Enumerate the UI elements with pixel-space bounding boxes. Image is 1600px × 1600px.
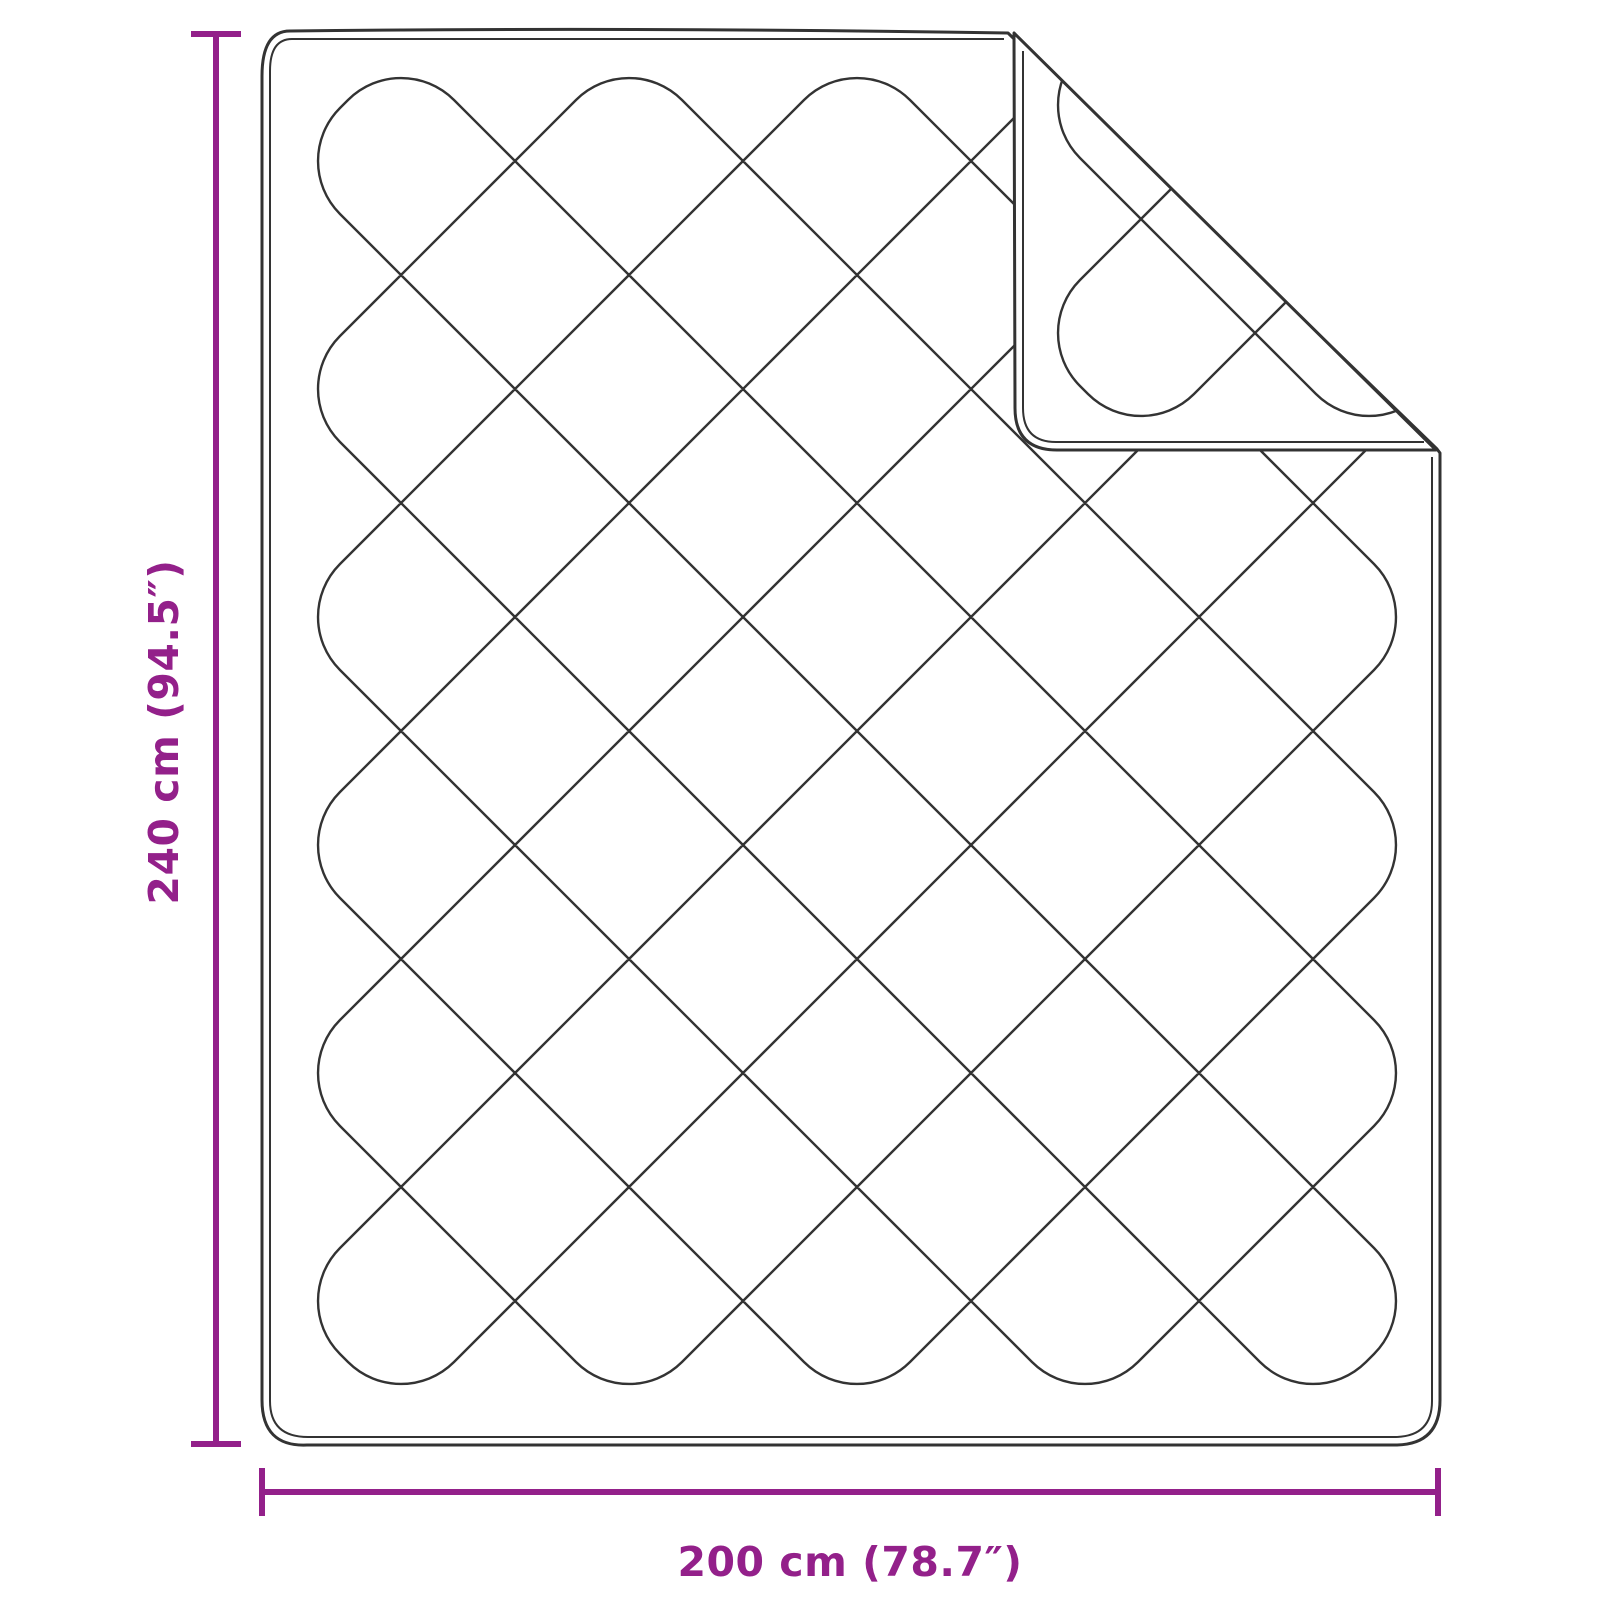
- folded-corner-flap: [1014, 33, 1436, 450]
- product-dimension-diagram: 240 cm (94.5″) 200 cm (78.7″): [0, 0, 1600, 1600]
- width-dimension-label: 200 cm (78.7″): [677, 1538, 1022, 1586]
- height-dimension-line: [191, 31, 241, 1447]
- width-dimension-line: [259, 1468, 1441, 1516]
- height-dimension-label: 240 cm (94.5″): [140, 559, 188, 904]
- blanket-illustration: [0, 0, 1600, 1600]
